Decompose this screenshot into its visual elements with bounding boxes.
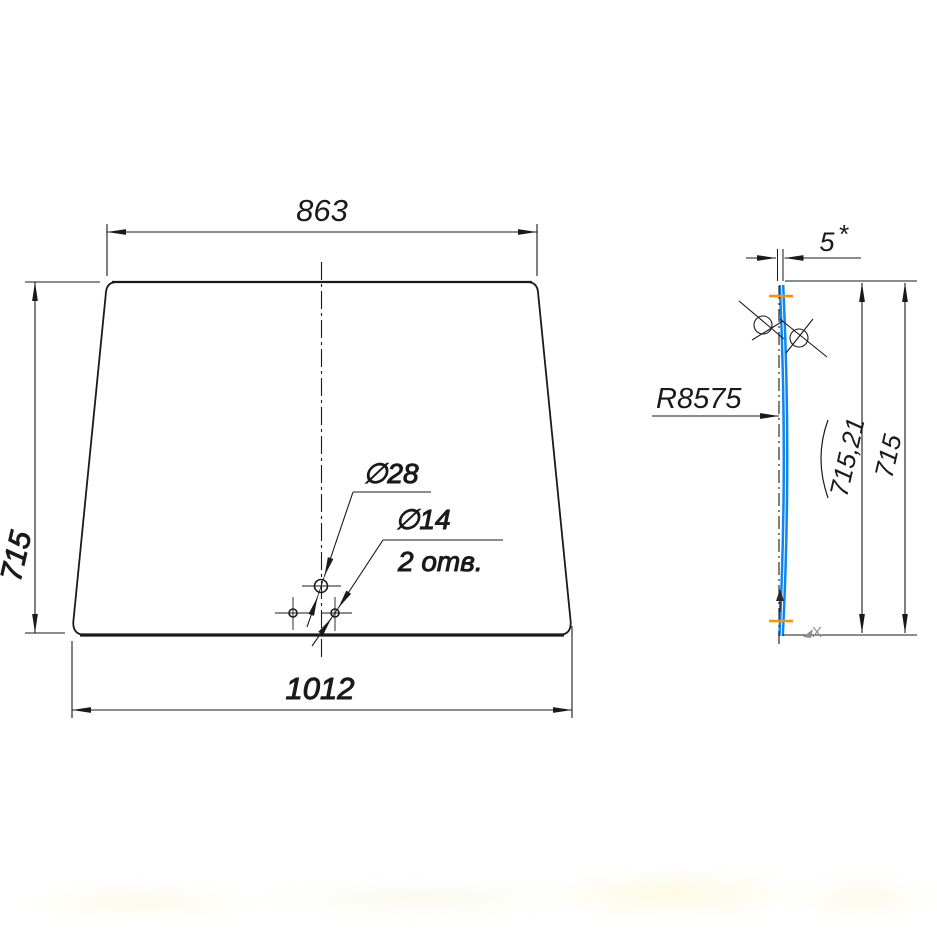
glass-material-symbol-right: [780, 319, 827, 357]
small-hole-count-label: 2 отв.: [397, 546, 483, 577]
x-axis-label: X: [812, 624, 822, 641]
large-hole-label: ∅28: [363, 458, 419, 489]
dim-arc-length-value: 715,21: [823, 415, 870, 499]
front-view: 863 1012 715: [0, 193, 572, 718]
dim-top-width-value: 863: [296, 193, 348, 228]
glass-symbol-short-stroke: [752, 321, 783, 340]
glass-symbol-long-stroke: [739, 301, 784, 339]
glass-symbol-circle: [754, 316, 772, 334]
dim-height-left-value: 715: [0, 528, 38, 585]
dim-bottom-width-value: 1012: [286, 671, 355, 706]
leader-arrow-line: [325, 492, 354, 576]
hole-group: [289, 580, 339, 618]
small-hole-label: ∅14: [395, 504, 451, 535]
thickness-ext-lines: [778, 249, 784, 281]
dim-thickness-value: 5: [819, 227, 835, 257]
glass-material-symbol-left: [739, 301, 784, 340]
leader-arrow-line: [338, 540, 383, 608]
dim-height-right-value: 715: [869, 431, 908, 481]
bend-radius-value: R8575: [656, 383, 742, 415]
y-axis-arrow-icon: [776, 589, 784, 601]
technical-drawing: 863 1012 715: [0, 0, 937, 938]
dim-thickness-tolerance-mark: *: [838, 219, 849, 249]
drawing-canvas: 863 1012 715: [0, 0, 937, 938]
watermark: [0, 858, 937, 938]
leader-arrow-line: [307, 597, 318, 627]
side-view: 5 * R8575 715,21 715: [652, 219, 917, 644]
glass-symbol-circle: [790, 329, 808, 347]
